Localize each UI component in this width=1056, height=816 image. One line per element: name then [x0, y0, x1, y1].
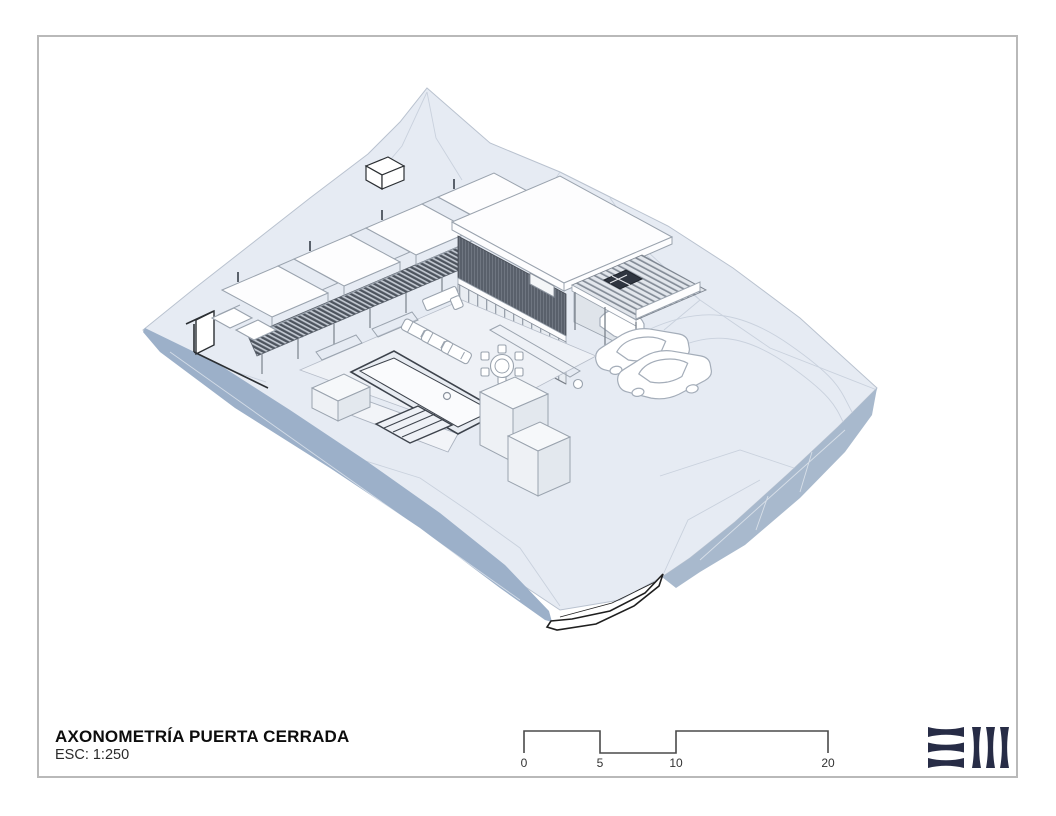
scale-label-10: 10 [669, 756, 683, 770]
studio-logo-icon [928, 727, 1010, 768]
scale-label-20: 20 [821, 756, 835, 770]
drawing-title: AXONOMETRÍA PUERTA CERRADA [55, 727, 350, 746]
drawing-scale: ESC: 1:250 [55, 746, 350, 764]
drawing-sheet: AXONOMETRÍA PUERTA CERRADA ESC: 1:250 0 … [0, 0, 1056, 816]
graphic-scale-bar: 0 5 10 20 [510, 722, 840, 776]
scale-label-0: 0 [521, 756, 528, 770]
plant-pot [574, 380, 583, 389]
axonometric-drawing [0, 0, 1056, 816]
title-block: AXONOMETRÍA PUERTA CERRADA ESC: 1:250 [55, 727, 350, 764]
scale-label-5: 5 [597, 756, 604, 770]
